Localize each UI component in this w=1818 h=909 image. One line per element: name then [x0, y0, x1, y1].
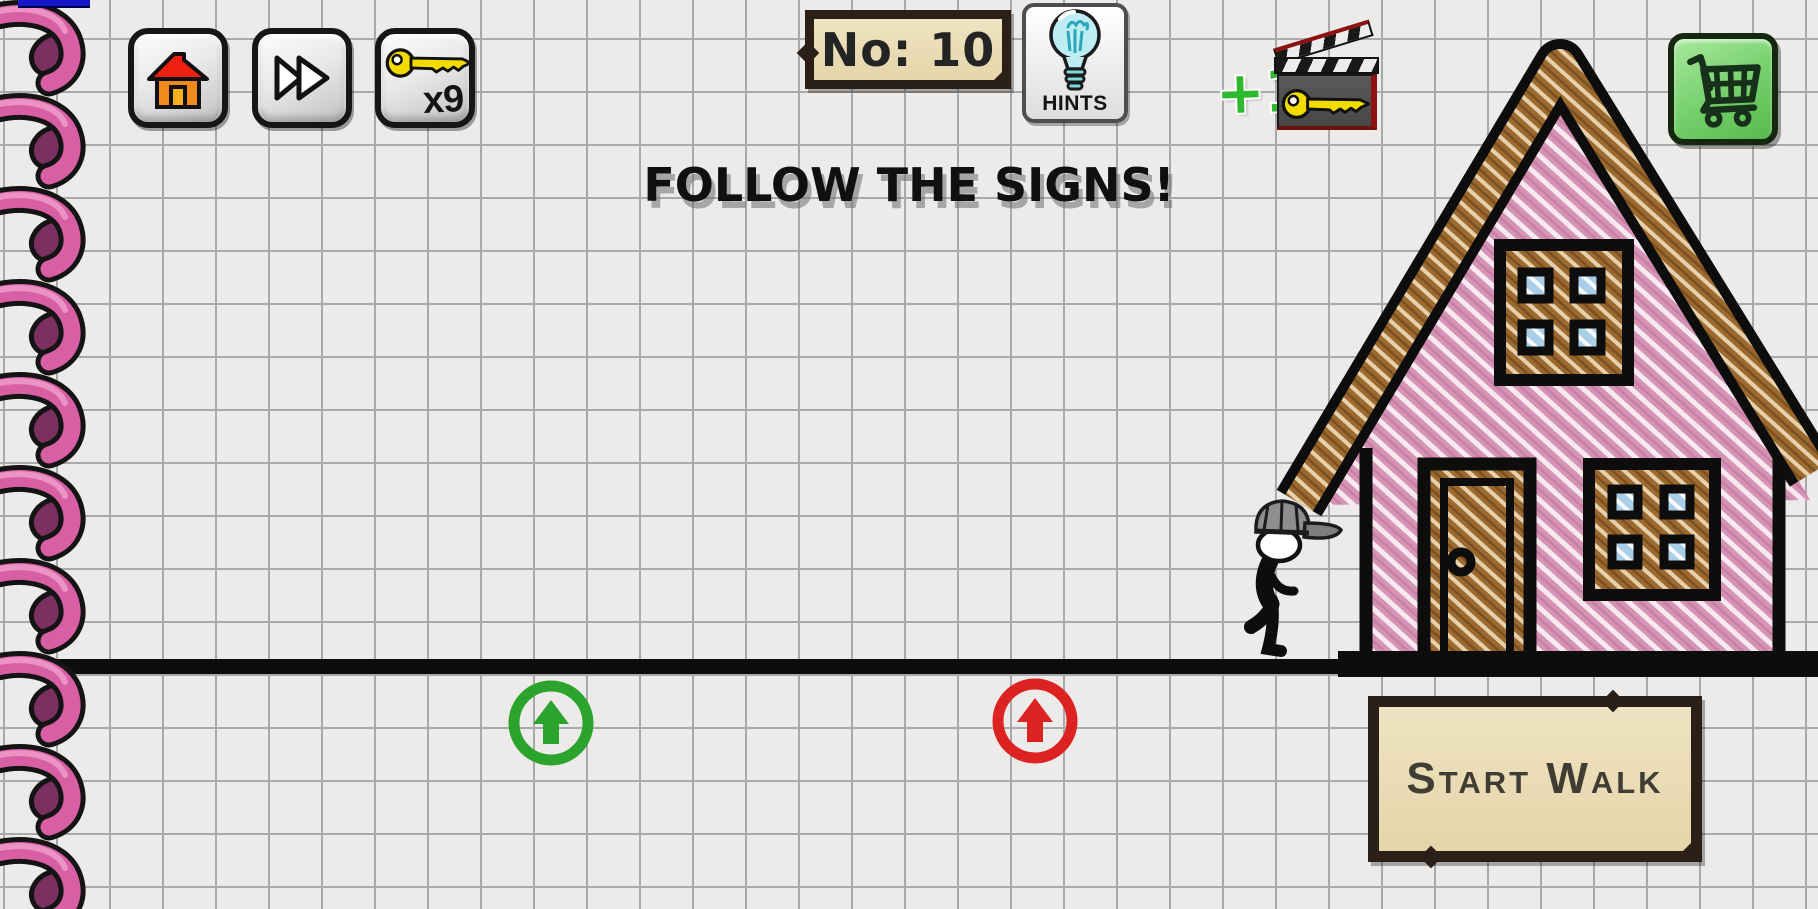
stickman-with-cap — [1251, 501, 1341, 651]
key-count-label: x9 — [422, 78, 464, 123]
top-edge-bar — [18, 0, 90, 8]
game-stage: x9 No: 10 HINTS +1 — [0, 0, 1818, 909]
home-icon — [145, 45, 211, 111]
shopping-cart-icon — [1681, 47, 1765, 131]
front-window — [1589, 464, 1715, 595]
shop-button[interactable] — [1668, 33, 1778, 145]
stickman-arm — [1270, 574, 1294, 591]
level-instruction: FOLLOW THE SIGNS! — [609, 158, 1209, 212]
clapperboard-mid-stick — [1274, 57, 1379, 74]
hints-button[interactable]: HINTS — [1022, 3, 1128, 123]
lightbulb-icon — [1044, 7, 1106, 91]
fast-forward-icon — [271, 48, 333, 108]
start-walk-label: Start Walk — [1406, 754, 1663, 804]
home-button[interactable] — [128, 28, 228, 128]
skip-level-button[interactable] — [252, 28, 352, 128]
green-up-arrow-sign[interactable] — [514, 686, 588, 760]
house-base — [1338, 651, 1818, 677]
red-up-arrow-sign[interactable] — [998, 684, 1072, 758]
corner-fold — [985, 63, 1011, 89]
hints-label: HINTS — [1042, 92, 1108, 116]
clapperboard-key-icon — [1277, 74, 1377, 130]
corner-fold — [1672, 832, 1702, 862]
spiral-binding — [0, 9, 88, 909]
watch-ad-key-button[interactable] — [1274, 34, 1382, 132]
keys-button[interactable]: x9 — [375, 28, 475, 128]
level-label: No: 10 — [821, 23, 996, 77]
level-plaque: No: 10 — [805, 10, 1011, 89]
house-door — [1424, 464, 1530, 664]
cap-brim — [1304, 523, 1341, 538]
start-walk-button[interactable]: Start Walk — [1368, 696, 1702, 862]
stickman-cap — [1256, 501, 1341, 538]
attic-window — [1500, 245, 1628, 380]
pink-house — [1299, 65, 1818, 677]
